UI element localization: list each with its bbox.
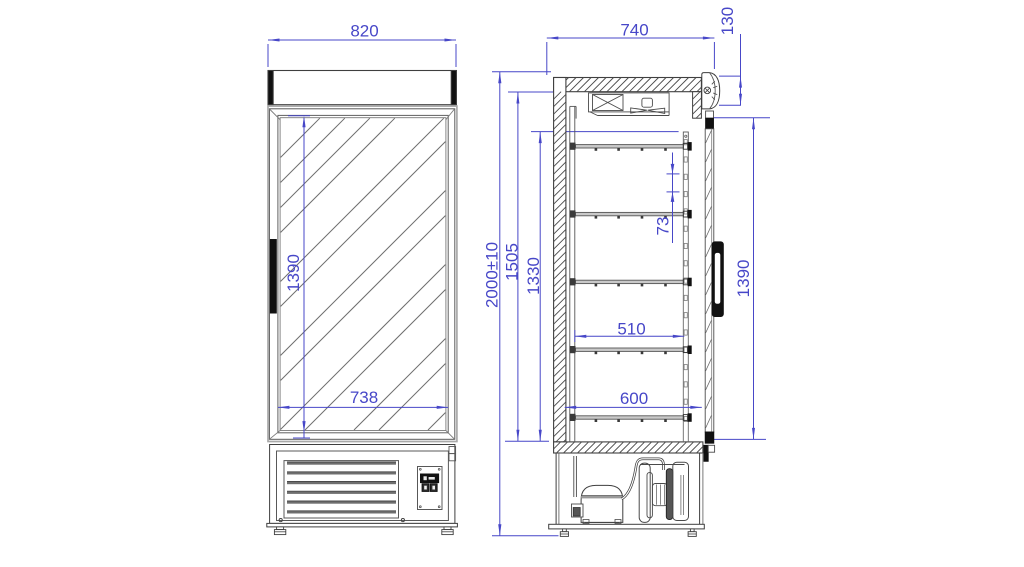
svg-text:130: 130 bbox=[718, 7, 737, 35]
svg-text:510: 510 bbox=[617, 319, 645, 338]
svg-text:1390: 1390 bbox=[284, 254, 303, 292]
svg-text:600: 600 bbox=[620, 389, 648, 408]
svg-text:740: 740 bbox=[620, 21, 648, 40]
svg-text:1505: 1505 bbox=[502, 243, 521, 281]
svg-text:2000±10: 2000±10 bbox=[483, 242, 502, 308]
svg-text:738: 738 bbox=[350, 388, 378, 407]
svg-text:1390: 1390 bbox=[734, 259, 753, 297]
svg-text:820: 820 bbox=[350, 22, 378, 41]
svg-text:73: 73 bbox=[654, 217, 673, 236]
svg-text:1330: 1330 bbox=[524, 257, 543, 295]
